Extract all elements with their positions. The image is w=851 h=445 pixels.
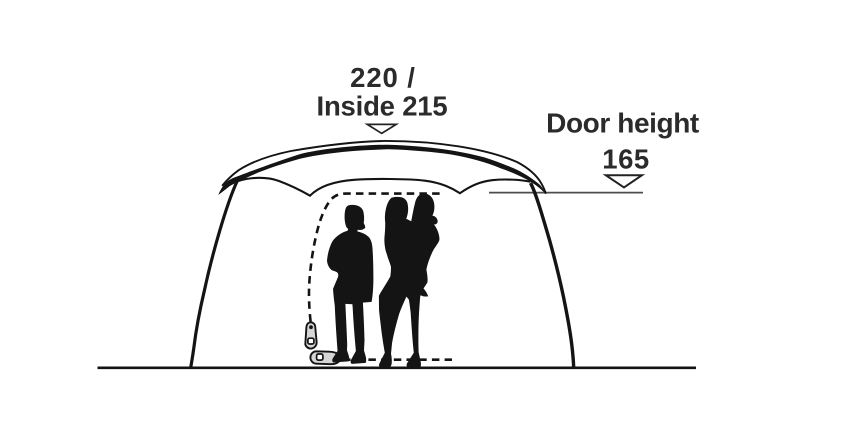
svg-text:Door height: Door height: [546, 108, 699, 139]
svg-text:Inside 215: Inside 215: [317, 91, 448, 122]
svg-text:165: 165: [602, 144, 649, 175]
svg-text:220 /: 220 /: [350, 62, 416, 93]
